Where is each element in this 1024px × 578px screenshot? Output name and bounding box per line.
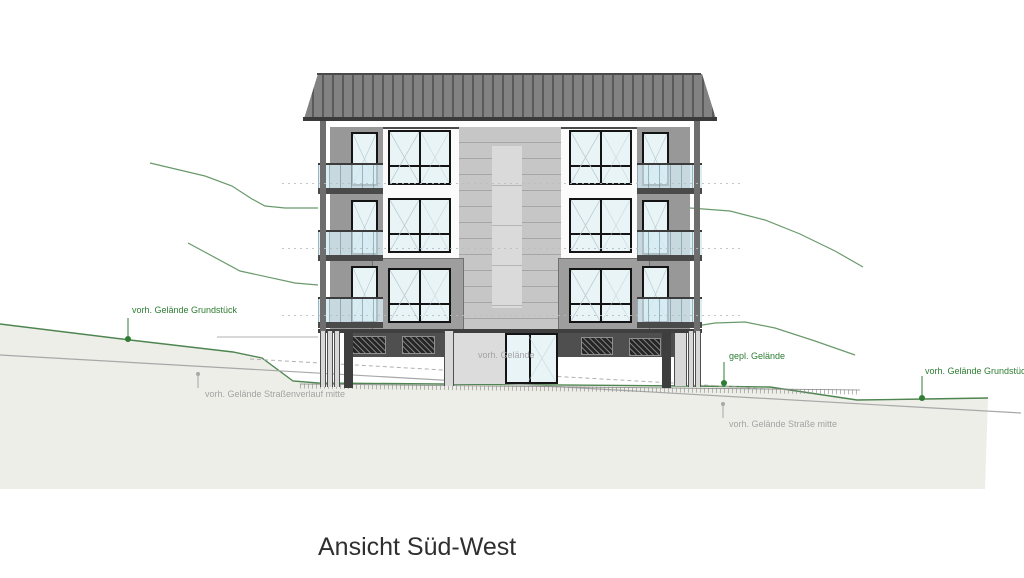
stilt-column [688, 331, 694, 387]
label-existing-ground-plot-left: vorh. Gelände Grundstück [132, 305, 237, 315]
balcony-floor-slab [637, 188, 702, 194]
stilt-column-dark [662, 333, 671, 388]
window [388, 130, 451, 185]
stilt-column [674, 333, 687, 386]
balcony-glass-railing [318, 163, 383, 190]
stilt-column [695, 331, 701, 387]
roof-eave-edge [303, 117, 717, 121]
elevation-drawing: vorh. Gelände Grundstück vorh. Gelände S… [0, 0, 1024, 578]
stilt-column [320, 331, 326, 387]
label-street-course-mid: vorh. Gelände Straßenverlauf mitte [205, 389, 345, 399]
ventilation-grille [402, 336, 435, 354]
level-line-2 [282, 248, 742, 249]
label-existing-ground-center: vorh. Gelände [478, 350, 535, 360]
view-title: Ansicht Süd-West [318, 533, 516, 562]
leader-planned-ground [721, 362, 727, 386]
contour-line-left-upper [150, 163, 318, 208]
level-line-3 [282, 315, 742, 316]
balcony-floor-slab [637, 255, 702, 261]
balcony-glass-railing [318, 230, 383, 257]
balcony-glass-railing [318, 297, 383, 324]
contour-line-left-lower [188, 243, 318, 285]
stilt-column [327, 331, 333, 387]
stairwell-center-strip [492, 146, 522, 308]
balcony-glass-railing [637, 297, 702, 324]
window [569, 130, 632, 185]
label-planned-ground: gepl. Gelände [729, 351, 785, 361]
level-line-1 [282, 183, 742, 184]
roof-ridge-line [317, 73, 701, 75]
balcony-floor-slab [318, 255, 383, 261]
balcony-floor-slab [318, 322, 383, 328]
window [388, 198, 451, 253]
leader-existing-ground-plot-left [125, 318, 131, 342]
balcony-glass-railing [637, 163, 702, 190]
ventilation-grille [352, 336, 386, 354]
ground-floor-slab-edge [318, 329, 702, 333]
leader-existing-ground-plot-right [919, 376, 925, 401]
stilt-column [444, 331, 454, 386]
label-existing-ground-plot-right: vorh. Gelände Grundstück [925, 366, 1024, 376]
ventilation-grille [629, 338, 661, 356]
stilt-column [334, 331, 340, 387]
label-street-mid-right: vorh. Gelände Straße mitte [729, 419, 837, 429]
window [569, 198, 632, 253]
balcony-floor-slab [318, 188, 383, 194]
contour-line-right-upper [690, 208, 863, 267]
corner-post-right [694, 121, 700, 333]
corner-post-left [320, 121, 326, 333]
balcony-floor-slab [637, 322, 702, 328]
stilt-column-dark [344, 331, 353, 388]
balcony-glass-railing [637, 230, 702, 257]
ventilation-grille [581, 337, 613, 355]
roof [304, 74, 716, 119]
